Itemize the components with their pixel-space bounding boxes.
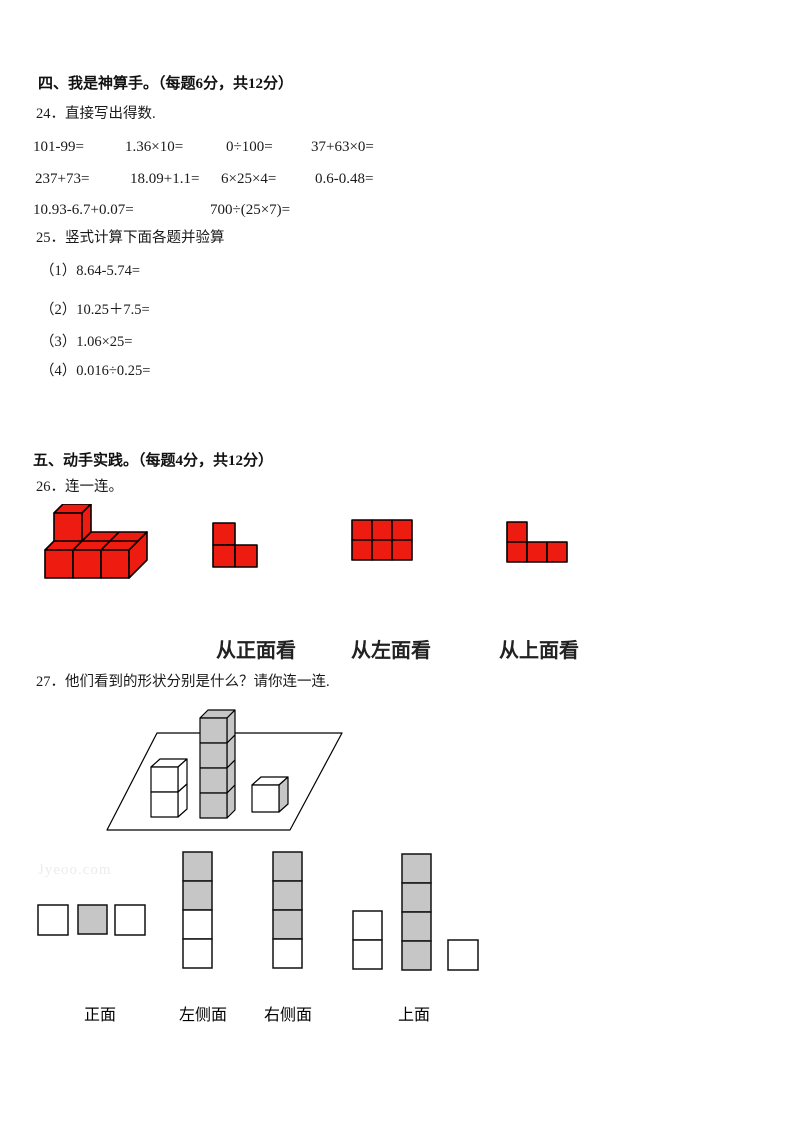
answer-label-top: 上面 bbox=[398, 1007, 430, 1025]
calc-expression: 18.09+1.1= bbox=[130, 171, 199, 188]
red-l-shape-4-figure bbox=[506, 521, 570, 565]
calc-item: （1）8.64-5.74= bbox=[40, 263, 140, 280]
right-view-shape bbox=[272, 851, 304, 971]
red-l-shape-3-figure bbox=[212, 522, 260, 570]
calc-expression: 700÷(25×7)= bbox=[210, 202, 290, 219]
calc-item: （2）10.25＋7.5= bbox=[40, 302, 150, 319]
view-label-top: 从上面看 bbox=[499, 640, 579, 663]
calc-expression: 10.93-6.7+0.07= bbox=[33, 202, 134, 219]
top-view-shape bbox=[352, 853, 482, 973]
question-25-label: 25．竖式计算下面各题并验算 bbox=[36, 230, 225, 247]
calc-expression: 101-99= bbox=[33, 139, 84, 156]
section-4-title: 四、我是神算手。（每题6分，共12分） bbox=[38, 76, 293, 93]
calc-expression: 37+63×0= bbox=[311, 139, 374, 156]
question-26-label: 26．连一连。 bbox=[36, 479, 123, 496]
calc-item: （4）0.016÷0.25= bbox=[40, 363, 150, 380]
red-rect-2x3-figure bbox=[351, 519, 415, 563]
answer-label-right-side: 右侧面 bbox=[264, 1007, 312, 1025]
question-24-label: 24．直接写出得数. bbox=[36, 106, 156, 123]
front-view-shape bbox=[37, 904, 149, 937]
calc-expression: 237+73= bbox=[35, 171, 89, 188]
view-label-left: 从左面看 bbox=[351, 640, 431, 663]
question-27-label: 27．他们看到的形状分别是什么？请你连一连. bbox=[36, 674, 330, 691]
answer-label-left-side: 左侧面 bbox=[179, 1007, 227, 1025]
left-view-shape bbox=[182, 851, 214, 971]
cube-scene-diagram bbox=[100, 700, 360, 840]
calc-expression: 1.36×10= bbox=[125, 139, 183, 156]
calc-expression: 0.6-0.48= bbox=[315, 171, 373, 188]
calc-item: （3）1.06×25= bbox=[40, 334, 132, 351]
red-3d-cube-solid-figure bbox=[38, 504, 150, 584]
worksheet-page: 四、我是神算手。（每题6分，共12分） 24．直接写出得数. 101-99= 1… bbox=[0, 0, 794, 1123]
watermark-text: Jyeoo.com bbox=[38, 862, 112, 879]
calc-expression: 0÷100= bbox=[226, 139, 273, 156]
section-5-title: 五、动手实践。（每题4分，共12分） bbox=[33, 453, 273, 470]
calc-expression: 6×25×4= bbox=[221, 171, 276, 188]
answer-label-front: 正面 bbox=[84, 1007, 116, 1025]
view-label-front: 从正面看 bbox=[216, 640, 296, 663]
